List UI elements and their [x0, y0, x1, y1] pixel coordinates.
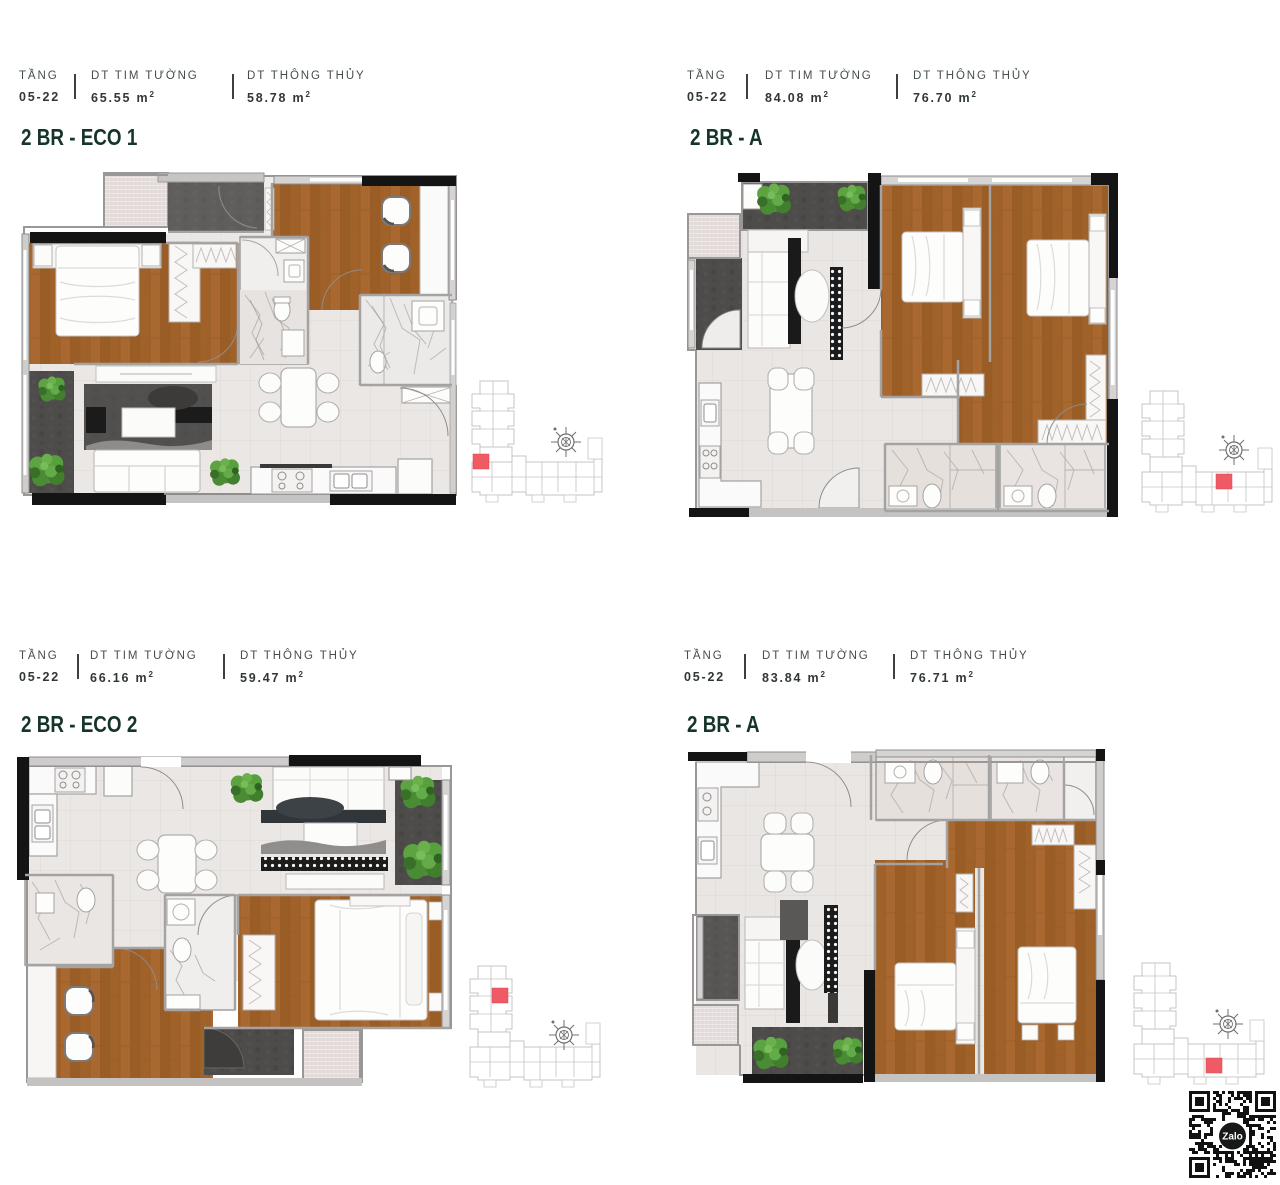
- svg-text:Zalo: Zalo: [1222, 1132, 1243, 1143]
